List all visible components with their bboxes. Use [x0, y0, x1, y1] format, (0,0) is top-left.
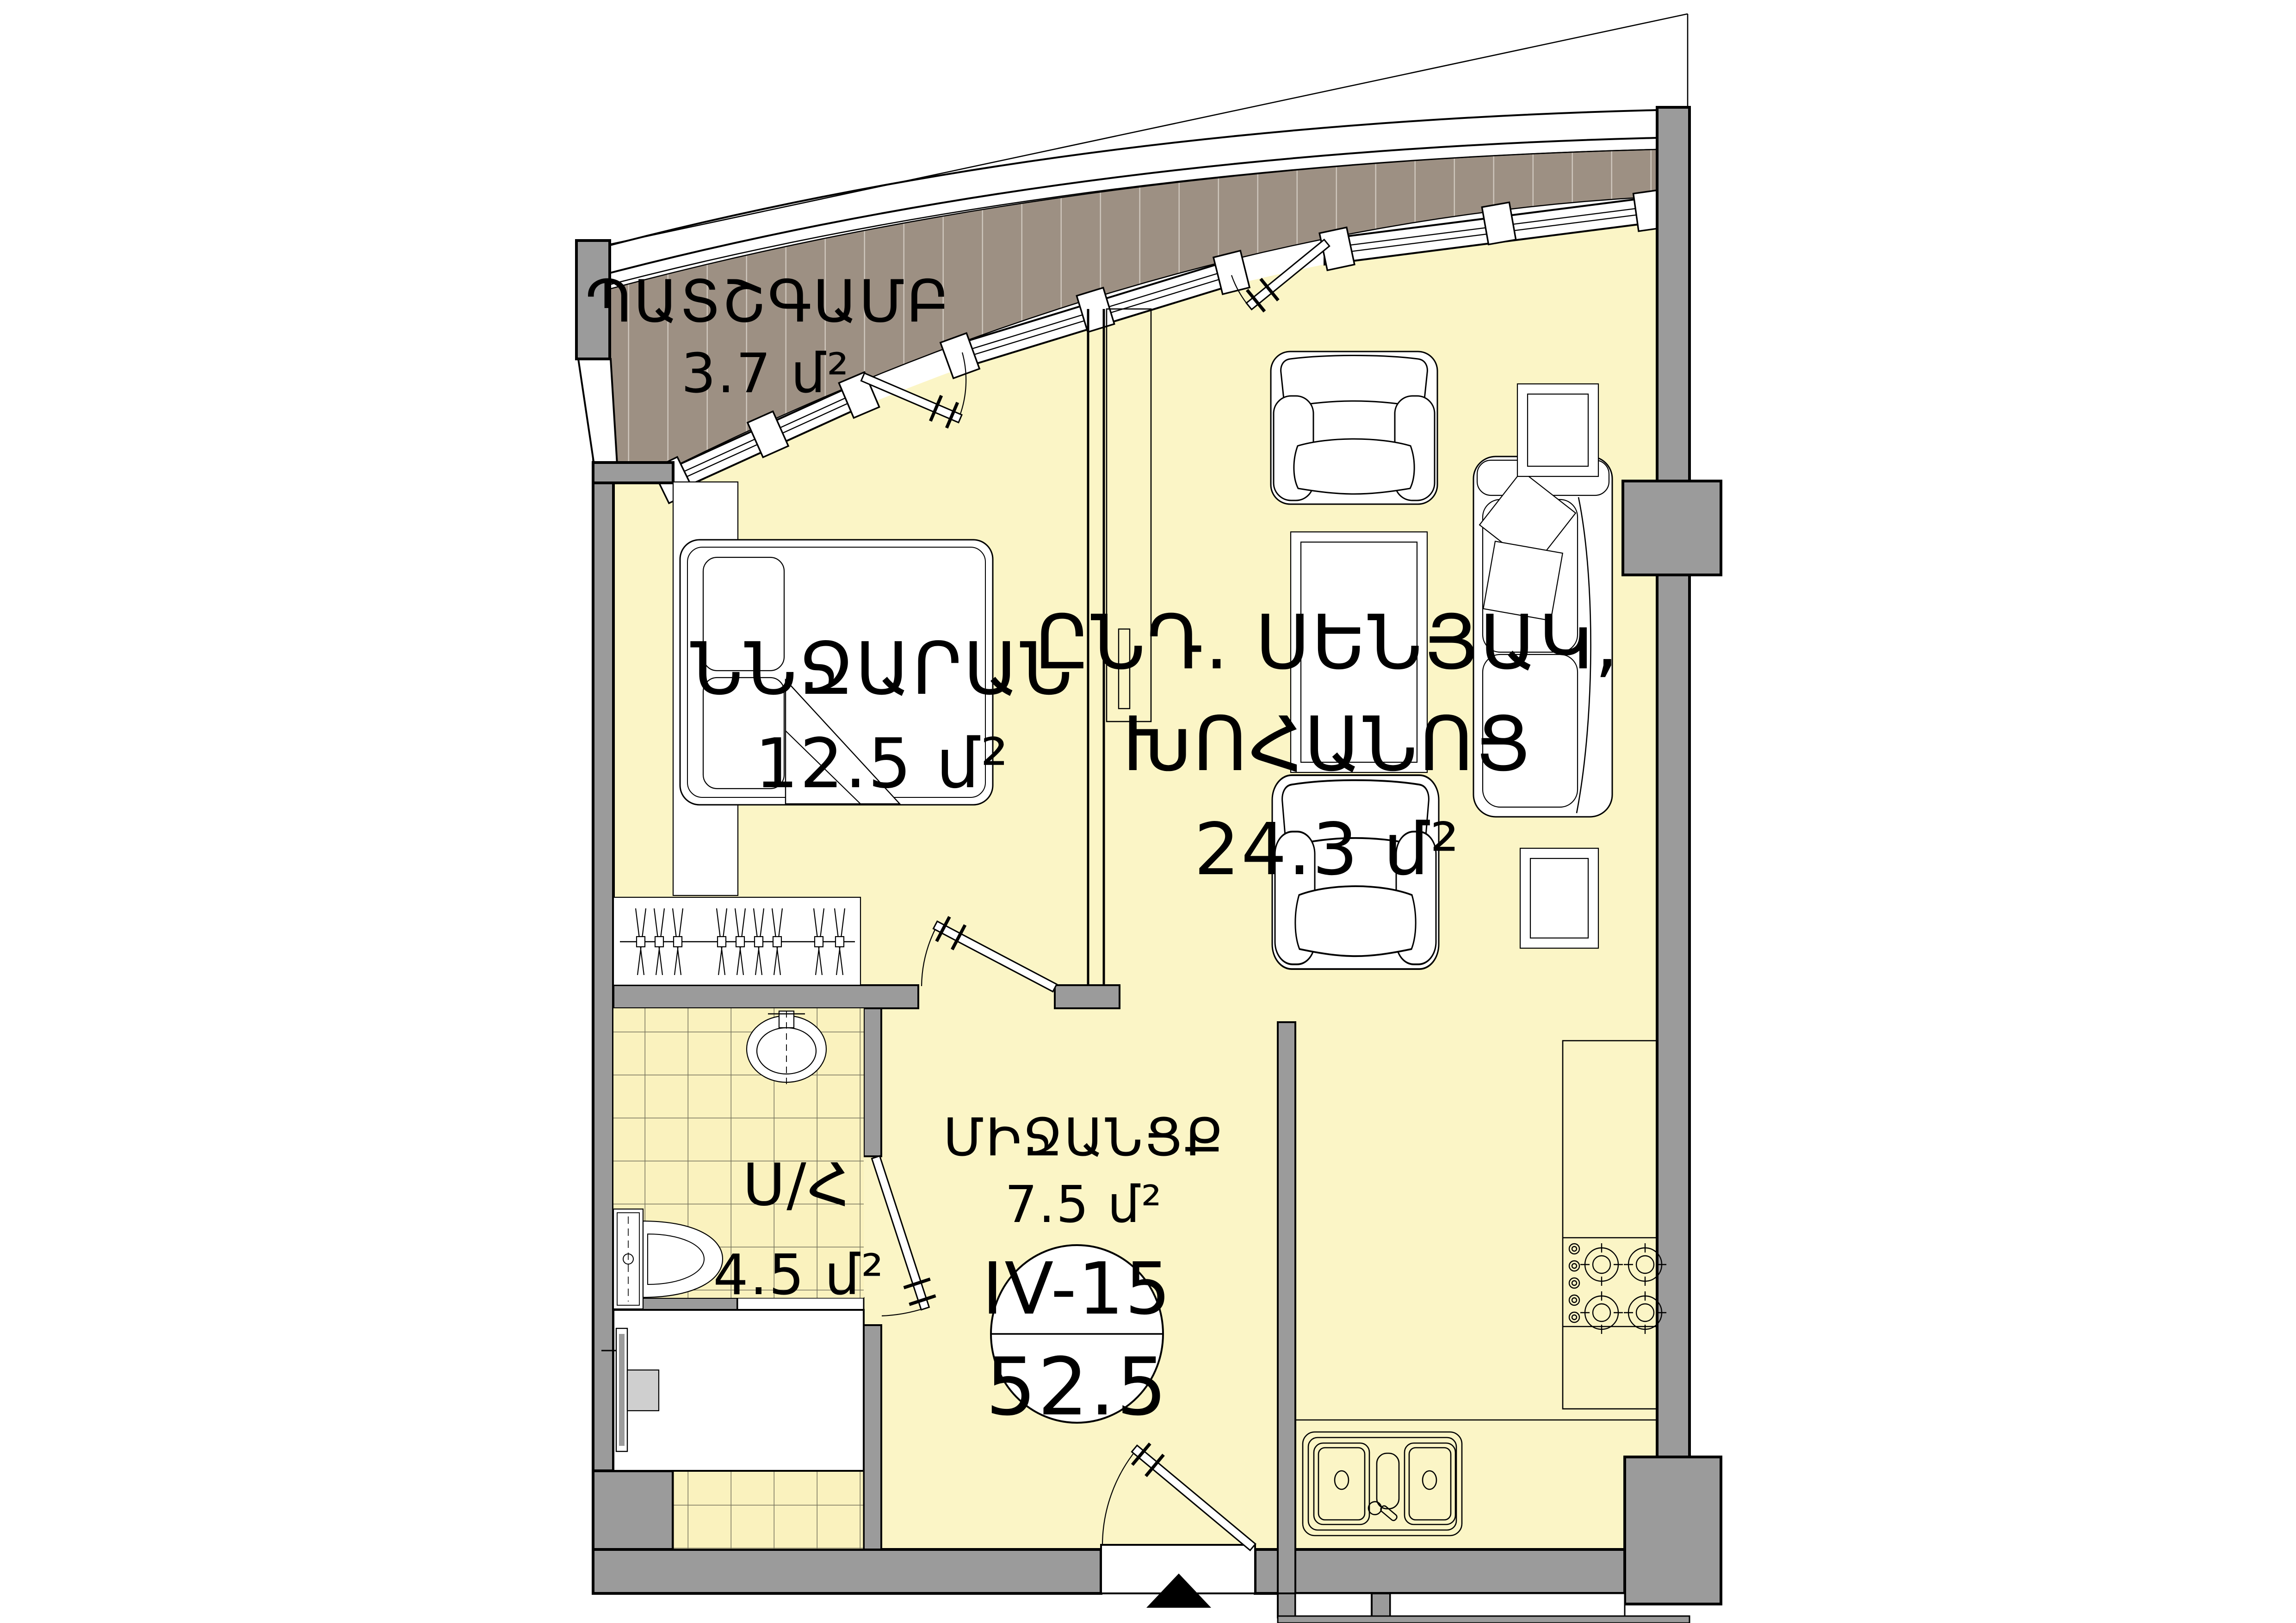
unit-badge: IV-15 52.5 [982, 1245, 1172, 1433]
wall-right-pilaster-top [1623, 481, 1721, 575]
living-name-label-1: ԸՆԴ. ՍԵՆՅԱԿ, [1034, 599, 1620, 686]
wall-left-top-piece [593, 463, 673, 483]
shaft-opening-left [1295, 1593, 1372, 1617]
wall-bottom-left [593, 1549, 1101, 1593]
floor-plan-page: ՊԱՏՇԳԱՄԲ 3.7 մ² [0, 0, 2296, 1623]
shaft-wall-left [1278, 1593, 1295, 1617]
side-table-bottom [1520, 848, 1598, 948]
shower-room [601, 1310, 864, 1471]
bedroom-name-label: ՆՆՋԱՐԱՆ [690, 627, 1074, 711]
towel-radiator-core [619, 1334, 625, 1446]
bottom-tile-strip [673, 1471, 864, 1549]
balcony-railing-end [578, 359, 617, 464]
living-area-label: 24.3 մ² [1194, 808, 1461, 891]
wall-bathroom-upper [864, 1008, 881, 1156]
wall-bedroom-corridor-right [1055, 985, 1120, 1008]
corridor-area-label: 7.5 մ² [1005, 1175, 1163, 1234]
unit-number-label: IV-15 [982, 1247, 1172, 1331]
shaft-post [1372, 1593, 1390, 1617]
wall-bedroom-corridor-left [613, 985, 918, 1008]
wall-right [1657, 107, 1690, 1593]
corridor-name-label: ՄԻՋԱՆՑՔ [943, 1108, 1225, 1168]
side-table-top [1517, 384, 1598, 476]
wall-bottom-right [1255, 1549, 1625, 1593]
unit-area-label: 52.5 [986, 1340, 1169, 1433]
wall-left [593, 482, 613, 1471]
armchair-top [1271, 352, 1437, 504]
bathroom-name-label: Ս/Հ [743, 1151, 851, 1219]
wall-bathroom-lower [864, 1325, 881, 1549]
shaft-opening-right [1390, 1593, 1625, 1617]
kitchen-sink [1303, 1432, 1462, 1536]
bedroom-area-label: 12.5 մ² [755, 724, 1010, 803]
shaft-bottom-strip [1278, 1616, 1690, 1623]
living-name-label-2: ԽՈՀԱՆՈՑ [1122, 701, 1532, 788]
shower-unit-box [627, 1370, 659, 1411]
wall-right-pilaster-bottom [1625, 1457, 1721, 1604]
balcony-name-label: ՊԱՏՇԳԱՄԲ [585, 267, 950, 335]
wall-kitchen-corridor [1278, 1022, 1295, 1593]
bathroom-area-label: 4.5 մ² [713, 1243, 885, 1308]
floor-plan-drawing: ՊԱՏՇԳԱՄԲ 3.7 մ² [0, 0, 2296, 1623]
balcony-area-label: 3.7 մ² [681, 341, 850, 405]
